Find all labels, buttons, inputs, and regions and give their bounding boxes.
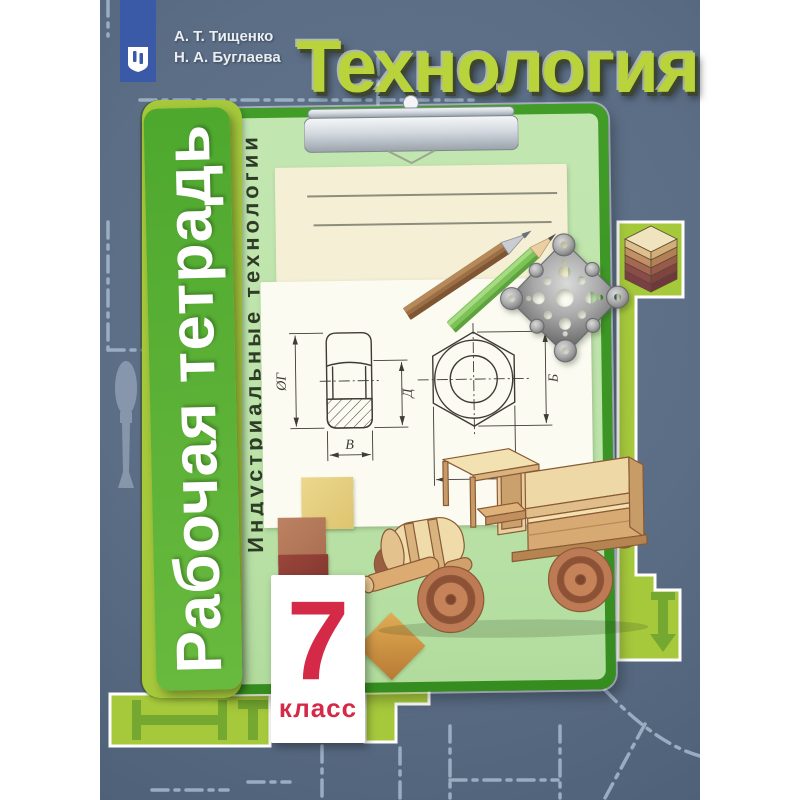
- dim-label-side-height: Д: [401, 387, 416, 399]
- grade-number: 7: [271, 585, 365, 697]
- publisher-logo: [120, 0, 156, 82]
- cover: А. Т. Тищенко Н. А. Буглаева Технология …: [100, 0, 700, 800]
- dim-label-side-diameter: ØГ: [275, 372, 290, 392]
- wooden-square-red: [278, 554, 328, 577]
- book-cover-image: А. Т. Тищенко Н. А. Буглаева Технология …: [0, 0, 800, 800]
- bottom-mid-accent-panel: [365, 690, 429, 742]
- dim-label-side-width: В: [345, 438, 354, 453]
- wooden-toy-truck: [360, 431, 663, 643]
- spine-label: Рабочая тетрадь: [150, 124, 236, 675]
- clipboard: Индустриальные технологии: [208, 103, 616, 695]
- front-wheel: [417, 566, 484, 633]
- plywood-stack-icon: [625, 226, 677, 292]
- grade-label: класс: [271, 693, 365, 724]
- rear-wheel: [548, 547, 613, 612]
- grade-card: 7 класс: [271, 575, 365, 743]
- dim-label-front-height: Б: [547, 374, 562, 383]
- spine-strip: Рабочая тетрадь: [143, 107, 242, 691]
- writing-line: [307, 192, 557, 197]
- clipboard-clip: [304, 90, 519, 171]
- metal-openwork-ornament: [498, 231, 632, 365]
- publisher-emblem-icon: [125, 44, 151, 74]
